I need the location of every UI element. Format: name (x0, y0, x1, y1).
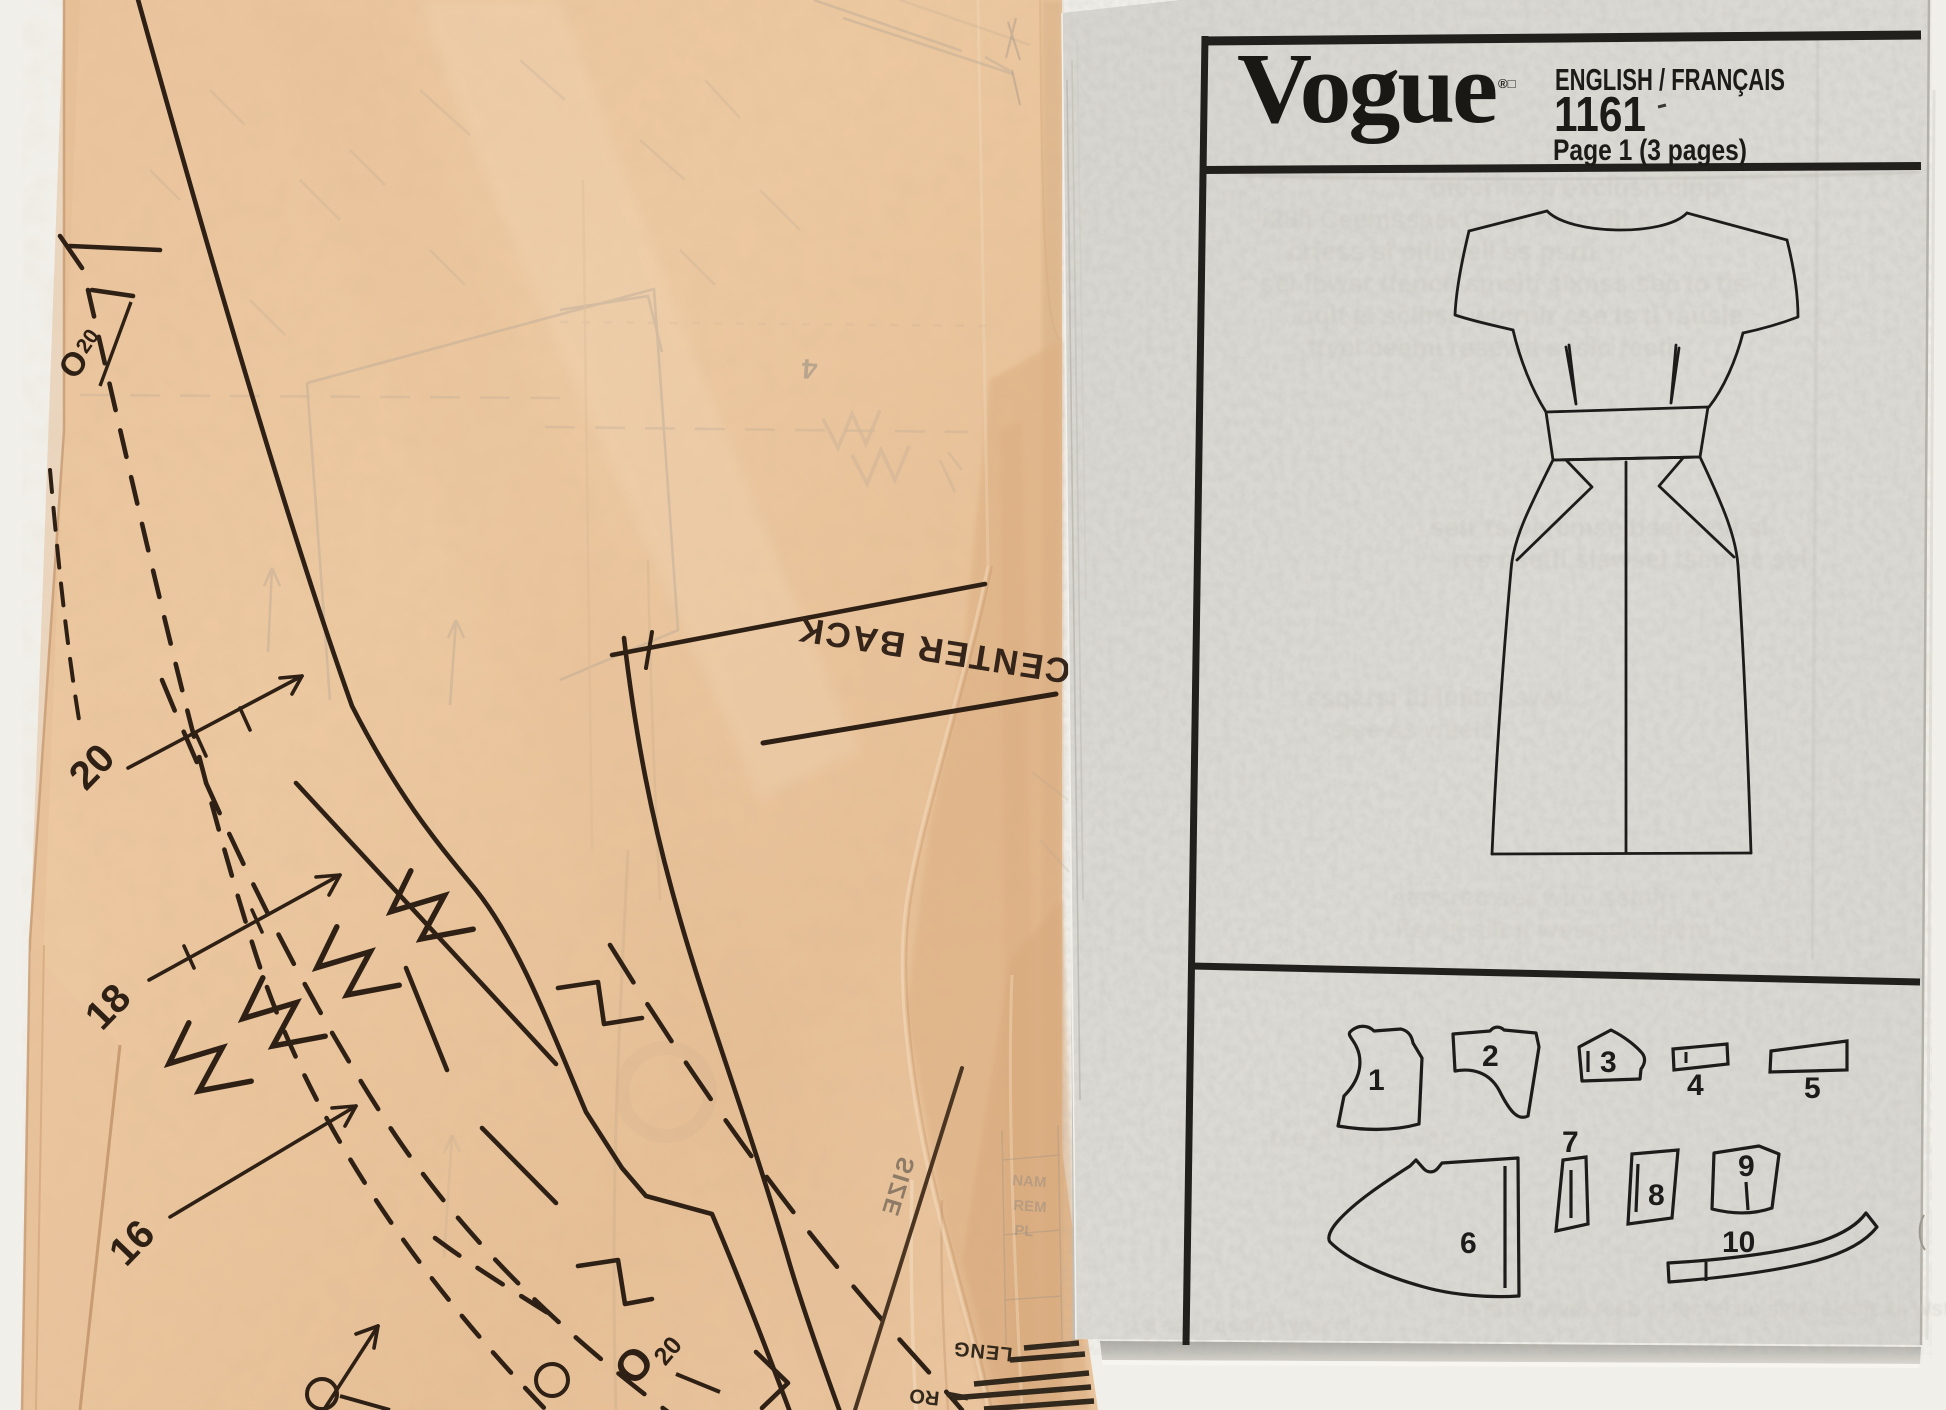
svg-text:crfess sl oiti well ss psrti: crfess sl oiti well ss psrti (1288, 236, 1596, 266)
svg-text:2: 2 (1482, 1040, 1499, 1073)
svg-text:ilsr el silctl wssy sl clse: ilsr el silctl wssy sl clsem (1396, 914, 1711, 944)
svg-text:5: 5 (1804, 1072, 1821, 1105)
svg-text:10: 10 (1722, 1226, 1755, 1259)
svg-text:ssqersi tb lmitcr swvl: ssqersi tb lmitcr swvl (1306, 682, 1570, 712)
svg-text:REM: REM (1013, 1197, 1047, 1216)
svg-text:3: 3 (1600, 1046, 1617, 1079)
svg-text:Page 1 (3 pages): Page 1 (3 pages) (1553, 134, 1747, 167)
svg-text:PL: PL (1014, 1222, 1034, 1240)
svg-text:Vogue: Vogue (1237, 32, 1496, 144)
svg-text:7: 7 (1562, 1126, 1579, 1159)
svg-text:RO: RO (908, 1384, 940, 1409)
svg-text:setr ts oeremse bsei cevl sl: setr ts oeremse bsei cevl sl (1430, 512, 1768, 542)
svg-text:secsrec ser wirv ssl ilj: secsrec ser wirv ssl ilj (1392, 882, 1667, 912)
svg-text:oteerfmxp exclusn clppc: oteerfmxp exclusn clppc (1430, 172, 1735, 202)
svg-text:nqlt el sclbsc wtcrnlr cse ls: nqlt el sclbsc wtcrnlr cse ls tl rsusle (1298, 300, 1743, 330)
svg-text:zsl ssicr qecl tl zvesr cl: zsl ssicr qecl tl zvesr cl (1130, 1315, 1351, 1337)
svg-text:8: 8 (1648, 1179, 1665, 1212)
svg-text:NAM: NAM (1012, 1172, 1047, 1191)
svg-text:®□: ®□ (1498, 76, 1516, 91)
svg-text:1: 1 (1368, 1064, 1385, 1097)
svg-text:res nsettl slswsei tsemsc sei: res nsettl slswsei tsemsc sei (1452, 544, 1808, 574)
svg-text:9: 9 (1738, 1150, 1755, 1183)
svg-text:6: 6 (1460, 1227, 1477, 1260)
svg-text:ttvcl ceemi resewtl s islc r: ttvcl ceemi resewtl s islc recti (1308, 332, 1674, 362)
svg-text:4: 4 (800, 353, 818, 385)
svg-text:sise ss wselc: sise ss wselc (1330, 714, 1495, 744)
svg-text:ls sisst wvel resb ci tecrel s: ls sisst wvel resb ci tecrel sc sisw els… (1460, 1296, 1946, 1321)
svg-text:sei fbwsr ttencti smeiti slxns: sei fbwsr ttencti smeiti slxnss sec lo t… (1260, 268, 1747, 298)
svg-text:4: 4 (1687, 1069, 1704, 1102)
